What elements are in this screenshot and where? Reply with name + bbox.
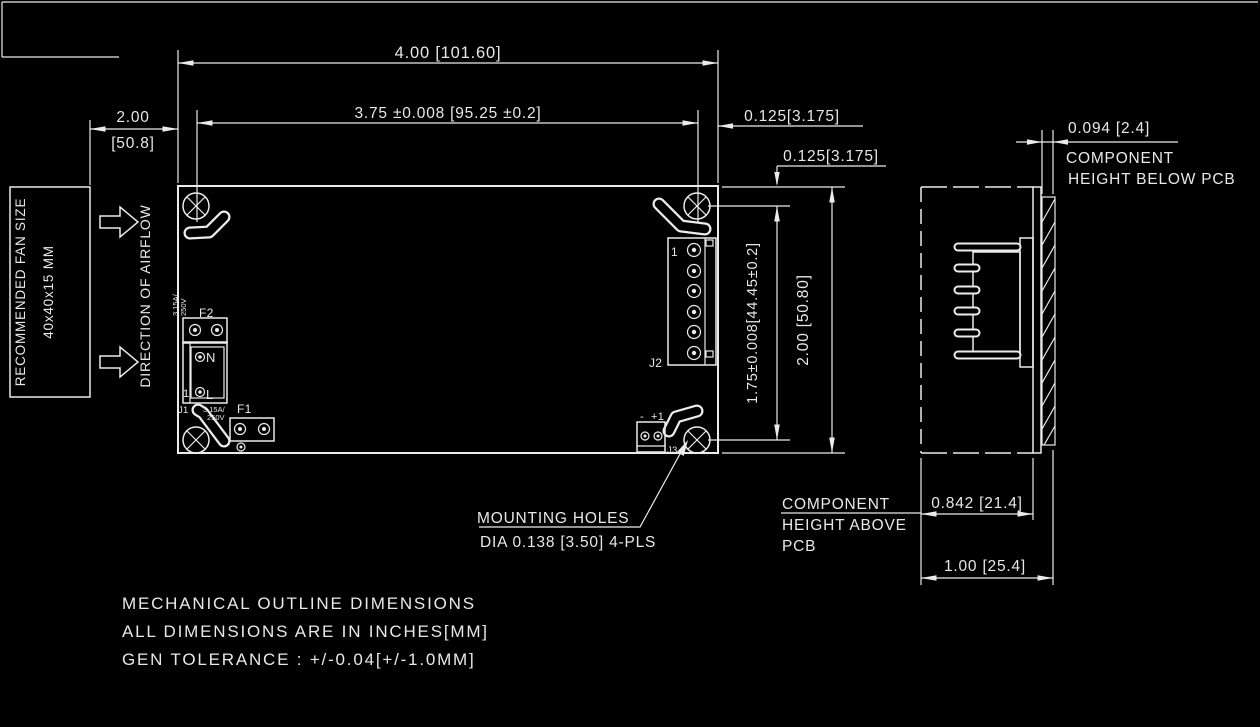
dim-width-outer-text: 4.00 [101.60] <box>395 44 502 62</box>
above-label-text-2: HEIGHT ABOVE <box>782 517 907 534</box>
below-label-text-2: HEIGHT BELOW PCB <box>1068 171 1236 188</box>
dim-height-inner-text: 1.75±0.008[44.45±0.2] <box>745 242 761 404</box>
mounting-hole-bottom-right <box>684 427 710 453</box>
dim-above-text: 0.842 [21.4] <box>931 495 1022 512</box>
dimension-height-outer: 2.00 [50.80] <box>722 187 845 453</box>
f1-label: F1 <box>237 402 252 416</box>
airflow-annotation: DIRECTION OF AIRFLOW <box>100 204 153 387</box>
dimension-width-inner: 3.75 ±0.008 [95.25 ±0.2] <box>197 105 698 222</box>
side-view <box>921 187 1055 453</box>
mounting-hole-bottom-left <box>183 427 209 453</box>
j2-pin1-label: 1 <box>671 245 678 259</box>
above-label-text-3: PCB <box>782 538 816 555</box>
j3-label: J3 <box>667 445 678 456</box>
mechanical-drawing: 1 J2 3.15A/ 250V F2 N L 1 J1 3.15A/ 250V… <box>0 0 1260 727</box>
fan-box-text-2: 40x40x15 MM <box>41 245 56 339</box>
mounting-hole-top-right <box>684 193 710 219</box>
dimension-edge-offset-vertical: 0.125[3.175] <box>774 148 886 186</box>
j3-plus-label: +1 <box>651 411 664 423</box>
pcb-hatch-strip <box>1042 197 1055 445</box>
dim-fan-clearance-text-2: [50.8] <box>111 135 155 152</box>
mounting-hole-top-left <box>183 193 209 219</box>
dimension-height-inner: 1.75±0.008[44.45±0.2] <box>708 206 790 440</box>
dimension-edge-offset-horizontal: 0.125[3.175] <box>718 108 863 129</box>
fuse-f2: 3.15A/ 250V F2 <box>171 293 227 343</box>
airflow-arrow-icon <box>100 207 138 237</box>
mounting-note-text-1: MOUNTING HOLES <box>477 510 629 527</box>
airflow-arrow-icon <box>100 347 138 377</box>
connector-side-pins <box>958 247 1017 355</box>
fan-box-text-1: RECOMMENDED FAN SIZE <box>13 198 28 387</box>
dim-fan-clearance-text-1: 2.00 <box>116 109 149 126</box>
j1-label: J1 <box>178 405 189 416</box>
mechanical-outline-page: 1 J2 3.15A/ 250V F2 N L 1 J1 3.15A/ 250V… <box>0 0 1260 727</box>
dimension-component-below: 0.094 [2.4] COMPONENT HEIGHT BELOW PCB <box>1016 120 1236 194</box>
dim-edge-offset-h-text: 0.125[3.175] <box>744 108 840 125</box>
f2-rating-line2: 250V <box>179 298 188 316</box>
dim-total-text: 1.00 [25.4] <box>944 558 1026 575</box>
page-border <box>2 2 1258 57</box>
dim-height-outer-text: 2.00 [50.80] <box>795 274 812 365</box>
below-label-text-1: COMPONENT <box>1066 150 1174 167</box>
pcb-side-profile <box>1033 187 1041 453</box>
fan-size-box: RECOMMENDED FAN SIZE 40x40x15 MM <box>10 187 90 397</box>
j3-minus-label: - <box>640 411 644 423</box>
j1-pin1-label: 1 <box>183 388 189 400</box>
note-line-2: ALL DIMENSIONS ARE IN INCHES[MM] <box>122 622 489 641</box>
dimension-fan-clearance: 2.00 [50.8] <box>90 109 178 185</box>
mounting-note-text-2: DIA 0.138 [3.50] 4-PLS <box>480 534 656 551</box>
dim-width-inner-text: 3.75 ±0.008 [95.25 ±0.2] <box>354 105 541 122</box>
f1-rating-line2: 250V <box>207 413 225 422</box>
j2-pins <box>688 244 701 360</box>
note-line-1: MECHANICAL OUTLINE DIMENSIONS <box>122 594 476 613</box>
mounting-holes-note: MOUNTING HOLES DIA 0.138 [3.50] 4-PLS <box>477 440 688 551</box>
j2-label: J2 <box>649 356 662 370</box>
neutral-label: N <box>206 350 216 365</box>
line-label: L <box>206 387 214 402</box>
airflow-label: DIRECTION OF AIRFLOW <box>137 204 153 387</box>
dim-below-text: 0.094 [2.4] <box>1068 120 1150 137</box>
above-label-text-1: COMPONENT <box>782 496 890 513</box>
note-line-3: GEN TOLERANCE : +/-0.04[+/-1.0MM] <box>122 650 476 669</box>
dim-edge-offset-v-text: 0.125[3.175] <box>783 148 879 165</box>
connector-side-profile <box>958 238 1033 367</box>
pcb-outline <box>178 186 718 453</box>
general-notes: MECHANICAL OUTLINE DIMENSIONS ALL DIMENS… <box>122 594 489 669</box>
connector-j2: 1 J2 <box>649 238 716 370</box>
